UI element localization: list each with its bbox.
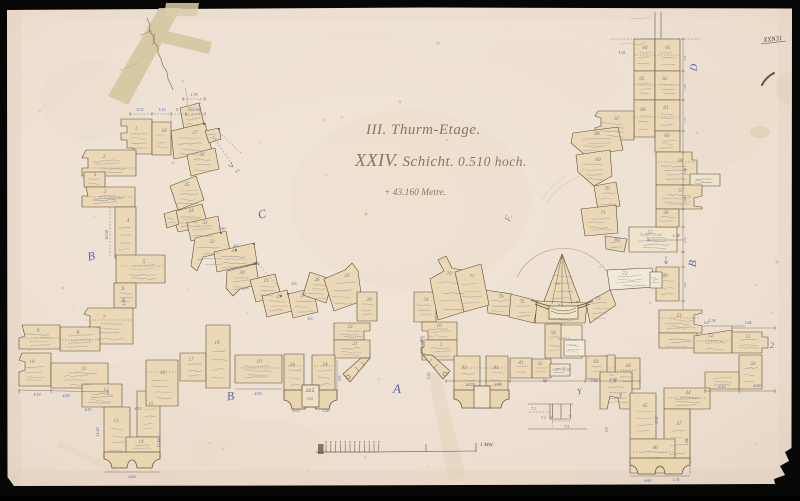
svg-text:6.60: 6.60 — [129, 474, 136, 479]
svg-text:44: 44 — [625, 362, 631, 369]
svg-text:13: 13 — [113, 418, 119, 424]
svg-text:5.6: 5.6 — [308, 316, 313, 321]
svg-text:0.5: 0.5 — [337, 376, 342, 381]
svg-text:4.14: 4.14 — [654, 417, 659, 424]
svg-text:1.07: 1.07 — [683, 84, 687, 90]
svg-text:3.50: 3.50 — [219, 226, 226, 231]
svg-text:1 Met.: 1 Met. — [480, 442, 494, 448]
svg-text:19: 19 — [256, 359, 262, 365]
svg-text:36: 36 — [199, 152, 205, 158]
svg-text:56: 56 — [663, 210, 669, 216]
svg-text:4.6: 4.6 — [292, 281, 297, 286]
svg-text:34: 34 — [550, 329, 556, 336]
svg-text:1.38: 1.38 — [673, 233, 680, 238]
svg-text:3: 3 — [104, 189, 107, 195]
svg-text:69: 69 — [595, 157, 601, 163]
svg-text:37: 37 — [192, 130, 198, 136]
svg-text:30: 30 — [239, 270, 245, 276]
svg-text:1.44: 1.44 — [745, 320, 752, 325]
svg-text:1: 1 — [440, 342, 443, 348]
svg-text:34: 34 — [161, 127, 167, 134]
svg-text:5: 5 — [94, 172, 97, 178]
svg-text:4.53: 4.53 — [85, 407, 92, 412]
svg-text:4.13: 4.13 — [135, 406, 142, 411]
svg-text:72: 72 — [555, 282, 561, 287]
svg-text:5: 5 — [143, 259, 146, 265]
svg-text:29: 29 — [276, 294, 282, 300]
svg-text:1.0: 1.0 — [683, 56, 687, 61]
svg-text:35: 35 — [184, 182, 190, 188]
svg-text:49: 49 — [662, 272, 668, 279]
svg-text:7.1: 7.1 — [531, 406, 536, 411]
svg-text:25: 25 — [344, 273, 350, 279]
svg-text:66: 66 — [640, 107, 646, 113]
svg-text:70: 70 — [446, 271, 452, 277]
svg-text:14: 14 — [138, 438, 144, 445]
svg-text:60: 60 — [664, 133, 670, 139]
svg-text:6.60: 6.60 — [754, 383, 761, 388]
svg-text:23: 23 — [347, 324, 353, 330]
svg-text:0.50: 0.50 — [323, 408, 330, 413]
svg-text:17: 17 — [188, 357, 194, 363]
svg-text:10.50: 10.50 — [104, 229, 109, 239]
svg-text:5.10: 5.10 — [159, 107, 166, 112]
svg-text:24: 24 — [322, 361, 328, 368]
svg-text:77: 77 — [469, 274, 475, 280]
svg-text:0.8: 0.8 — [683, 197, 687, 202]
svg-text:16: 16 — [160, 370, 166, 376]
svg-text:1.0: 1.0 — [704, 320, 709, 325]
svg-text:4.0: 4.0 — [234, 243, 239, 248]
svg-text:3: 3 — [617, 392, 622, 400]
svg-text:4: 4 — [127, 217, 130, 224]
svg-text:9: 9 — [37, 328, 40, 334]
svg-text:34: 34 — [188, 207, 194, 214]
svg-text:65: 65 — [639, 76, 645, 82]
svg-text:2: 2 — [770, 341, 774, 350]
svg-text:50: 50 — [750, 361, 756, 367]
svg-text:42: 42 — [537, 360, 543, 367]
svg-text:1.84: 1.84 — [684, 439, 689, 446]
svg-text:1.05: 1.05 — [306, 396, 313, 401]
svg-text:1.01: 1.01 — [619, 50, 626, 55]
svg-text:93: 93 — [593, 359, 599, 365]
svg-text:14.70: 14.70 — [466, 382, 475, 387]
svg-text:24: 24 — [289, 361, 295, 368]
svg-text:1.34: 1.34 — [673, 477, 680, 482]
svg-text:18: 18 — [214, 340, 220, 346]
svg-text:24: 24 — [423, 296, 429, 303]
svg-text:76: 76 — [498, 294, 504, 300]
svg-text:1.01: 1.01 — [683, 237, 687, 243]
svg-text:65: 65 — [665, 45, 671, 51]
svg-text:4.03: 4.03 — [293, 408, 300, 413]
svg-text:N.88+0.5a: N.88+0.5a — [639, 233, 662, 238]
svg-text:24.5: 24.5 — [306, 389, 315, 394]
svg-text:1.3: 1.3 — [683, 118, 687, 123]
svg-text:5.90: 5.90 — [610, 377, 617, 382]
svg-text:+ 43.160 Metre.: + 43.160 Metre. — [384, 188, 446, 198]
svg-text:21: 21 — [352, 341, 358, 347]
svg-text:20: 20 — [366, 297, 372, 303]
svg-text:8: 8 — [77, 330, 80, 336]
svg-text:5: 5 — [176, 107, 178, 112]
svg-text:45: 45 — [642, 402, 648, 409]
svg-text:44: 44 — [685, 389, 691, 396]
svg-text:1.0: 1.0 — [543, 378, 548, 383]
svg-text:67: 67 — [614, 116, 620, 122]
svg-text:4.90: 4.90 — [495, 382, 502, 387]
svg-text:7.92: 7.92 — [426, 373, 431, 380]
svg-text:1.0: 1.0 — [604, 428, 609, 433]
svg-text:7.1: 7.1 — [541, 415, 546, 420]
svg-text:4.50: 4.50 — [63, 393, 70, 398]
svg-text:6.60: 6.60 — [645, 478, 652, 483]
svg-text:11.44: 11.44 — [95, 427, 100, 436]
svg-text:11: 11 — [82, 366, 87, 372]
svg-text:3.16: 3.16 — [193, 107, 200, 112]
svg-text:31: 31 — [231, 248, 237, 254]
svg-text:7.3: 7.3 — [564, 424, 569, 429]
svg-text:71: 71 — [600, 210, 606, 216]
svg-text:11.44: 11.44 — [156, 438, 161, 447]
svg-text:19: 19 — [263, 278, 269, 284]
svg-text:61: 61 — [663, 105, 669, 111]
svg-text:84: 84 — [493, 364, 499, 371]
svg-text:62: 62 — [662, 76, 668, 82]
svg-text:75: 75 — [519, 299, 525, 305]
svg-text:15: 15 — [148, 401, 154, 407]
svg-text:26: 26 — [314, 277, 320, 283]
svg-text:33: 33 — [202, 220, 208, 226]
svg-text:70: 70 — [604, 186, 610, 192]
svg-text:41: 41 — [518, 359, 524, 366]
svg-text:1.01: 1.01 — [683, 282, 687, 288]
svg-text:1: 1 — [135, 126, 138, 132]
svg-text:2: 2 — [103, 154, 106, 160]
svg-text:27: 27 — [300, 293, 306, 299]
svg-text:64: 64 — [642, 44, 648, 51]
svg-text:32: 32 — [209, 239, 215, 245]
svg-text:4.19: 4.19 — [34, 392, 41, 397]
svg-text:68: 68 — [594, 131, 600, 137]
svg-text:1.88: 1.88 — [683, 168, 687, 174]
svg-text:7.46: 7.46 — [591, 378, 598, 383]
svg-text:6: 6 — [122, 286, 125, 292]
svg-text:4.50: 4.50 — [255, 391, 262, 396]
svg-text:N.88.5: N.88.5 — [557, 336, 571, 341]
svg-text:6.10: 6.10 — [719, 384, 726, 389]
svg-text:III. Thurm-Etage.: III. Thurm-Etage. — [365, 122, 481, 138]
svg-text:5.32: 5.32 — [137, 107, 144, 112]
svg-text:58: 58 — [677, 158, 683, 164]
svg-text:73: 73 — [595, 296, 601, 302]
svg-text:46: 46 — [652, 444, 658, 451]
svg-text:1.34: 1.34 — [709, 318, 716, 323]
svg-text:1.70: 1.70 — [191, 92, 198, 97]
svg-text:52: 52 — [708, 333, 714, 339]
svg-text:A: A — [392, 381, 401, 396]
svg-text:10: 10 — [436, 323, 442, 329]
svg-text:1.40: 1.40 — [121, 297, 126, 305]
svg-text:47: 47 — [676, 420, 682, 427]
svg-text:10: 10 — [29, 359, 35, 365]
svg-text:1.87+0.34: 1.87+0.34 — [552, 367, 572, 372]
